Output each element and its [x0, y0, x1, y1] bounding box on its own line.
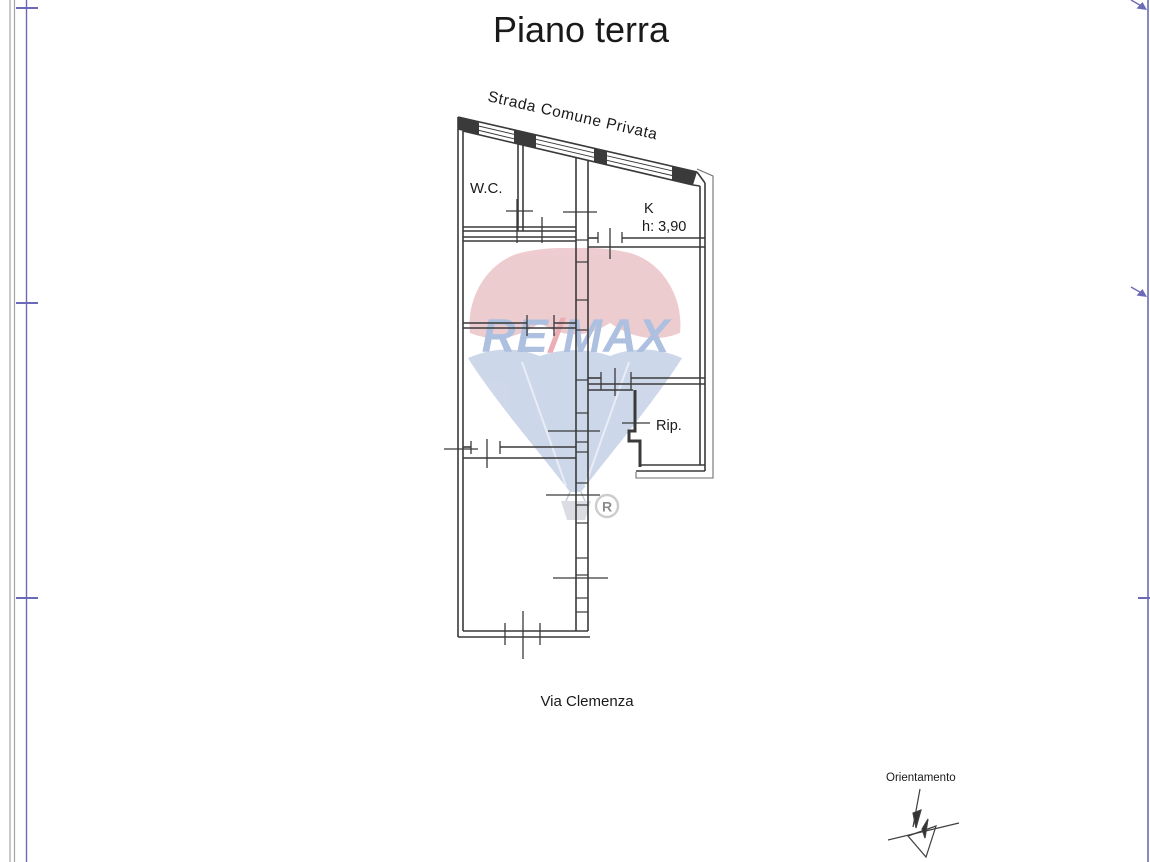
wall-corner — [697, 172, 705, 183]
room-label-storage: Rip. — [656, 418, 682, 434]
street-window — [479, 126, 514, 134]
room-label-wc: W.C. — [470, 180, 503, 197]
balloon-tether — [566, 492, 570, 501]
orientation-label: Orientamento — [886, 772, 956, 784]
page-title: Piano terra — [493, 9, 670, 50]
wall-top-inner — [463, 131, 693, 185]
registered-mark-letter: R — [602, 499, 612, 515]
wall-corner — [693, 185, 700, 186]
room-label-kitchen-height: h: 3,90 — [642, 219, 686, 235]
wall-pier — [458, 117, 479, 135]
frame-arrow-right-mid — [1131, 287, 1147, 297]
frame-arrow-right-top — [1131, 0, 1147, 10]
street-label-bottom: Via Clemenza — [540, 693, 634, 710]
room-label-kitchen: K — [644, 201, 654, 217]
north-arrow-icon — [888, 789, 959, 857]
floorplan-drawing: RE/MAX R — [0, 0, 1150, 862]
remax-wordmark: RE/MAX — [482, 309, 672, 362]
street-window — [479, 130, 514, 138]
remax-max: MAX — [563, 309, 672, 362]
remax-re: RE — [482, 309, 550, 362]
street-label-top: Strada Comune Privata — [486, 88, 659, 143]
sheet: RE/MAX R — [0, 0, 1150, 862]
orientation-group: Orientamento — [886, 772, 959, 857]
balloon-tether — [581, 492, 585, 501]
